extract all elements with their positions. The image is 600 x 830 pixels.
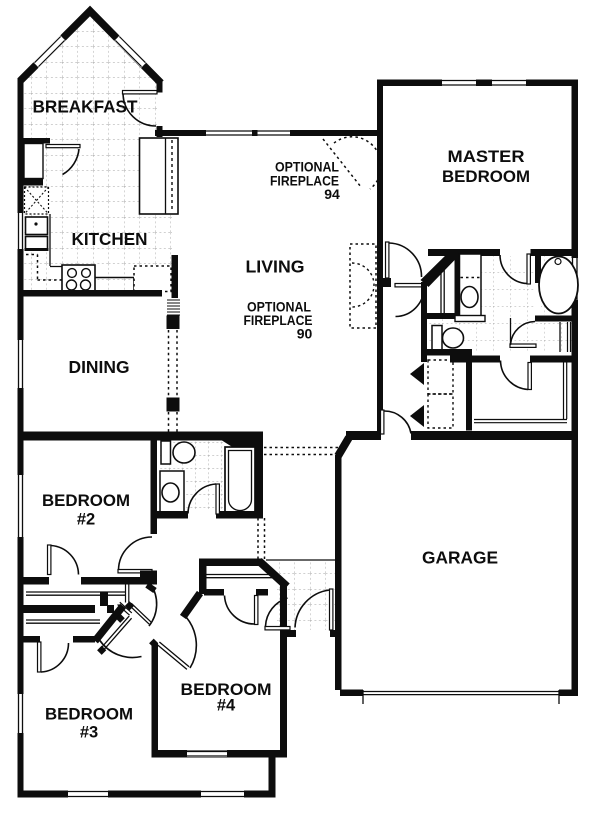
- svg-text:#4: #4: [217, 697, 236, 715]
- svg-text:MASTER: MASTER: [448, 147, 525, 166]
- svg-text:#2: #2: [77, 511, 95, 529]
- svg-text:BEDROOM: BEDROOM: [42, 492, 130, 510]
- svg-text:KITCHEN: KITCHEN: [72, 229, 148, 249]
- svg-text:90: 90: [297, 326, 313, 342]
- svg-text:BEDROOM: BEDROOM: [442, 167, 530, 186]
- svg-text:GARAGE: GARAGE: [422, 548, 498, 568]
- svg-text:BREAKFAST: BREAKFAST: [33, 97, 138, 117]
- svg-text:DINING: DINING: [69, 357, 130, 377]
- svg-text:LIVING: LIVING: [246, 257, 305, 277]
- svg-text:BEDROOM: BEDROOM: [45, 706, 133, 724]
- svg-text:#3: #3: [80, 724, 98, 742]
- svg-text:94: 94: [324, 186, 340, 202]
